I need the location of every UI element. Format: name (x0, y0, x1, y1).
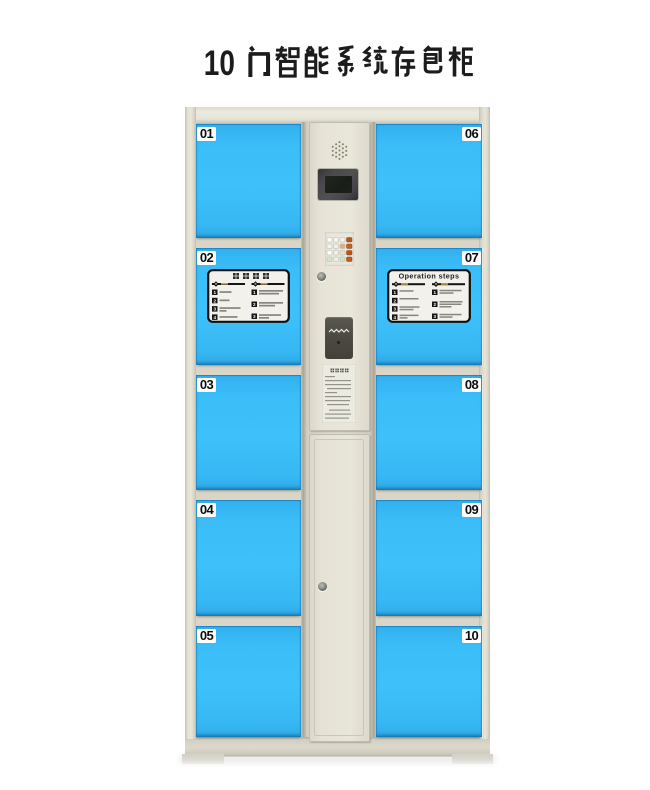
svg-text:1: 1 (213, 290, 216, 295)
svg-text:3: 3 (393, 307, 396, 312)
svg-text:1: 1 (393, 290, 396, 295)
svg-text:2: 2 (433, 302, 436, 307)
svg-text:4: 4 (393, 315, 396, 320)
svg-text:2: 2 (213, 298, 216, 303)
svg-text:3: 3 (253, 314, 256, 319)
svg-text:3: 3 (213, 307, 216, 312)
svg-text:1: 1 (433, 290, 436, 295)
svg-text:2: 2 (393, 298, 396, 303)
svg-text:10: 10 (204, 43, 235, 83)
svg-text:1: 1 (253, 290, 256, 295)
svg-text:2: 2 (253, 302, 256, 307)
svg-text:3: 3 (433, 314, 436, 319)
svg-text:4: 4 (213, 315, 216, 320)
svg-text:Operation steps: Operation steps (399, 272, 460, 281)
